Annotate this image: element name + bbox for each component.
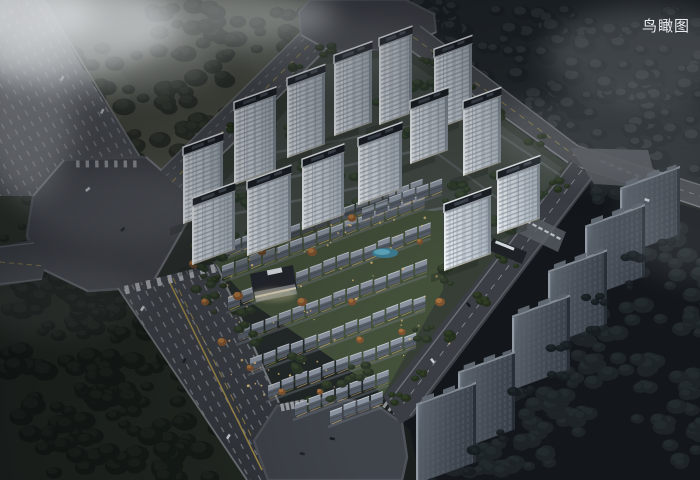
svg-text:鸟瞰图: 鸟瞰图 bbox=[642, 18, 690, 35]
